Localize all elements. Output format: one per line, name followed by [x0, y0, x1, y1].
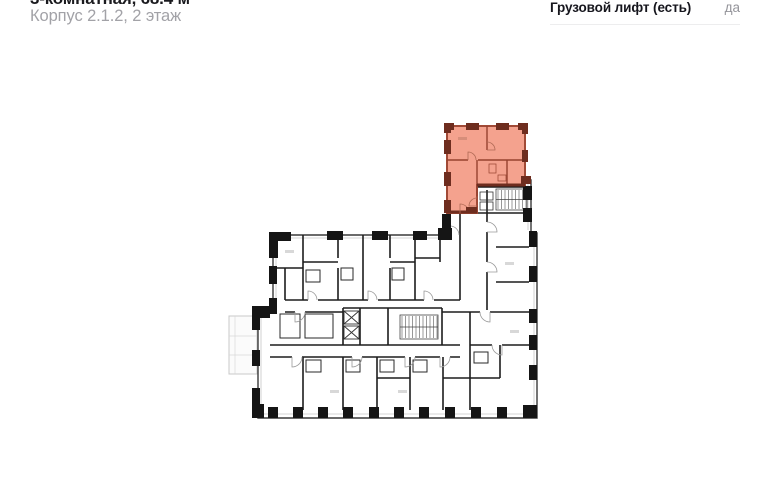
- floor-plan[interactable]: [0, 0, 770, 500]
- apartment-area-label-mark: [458, 137, 467, 140]
